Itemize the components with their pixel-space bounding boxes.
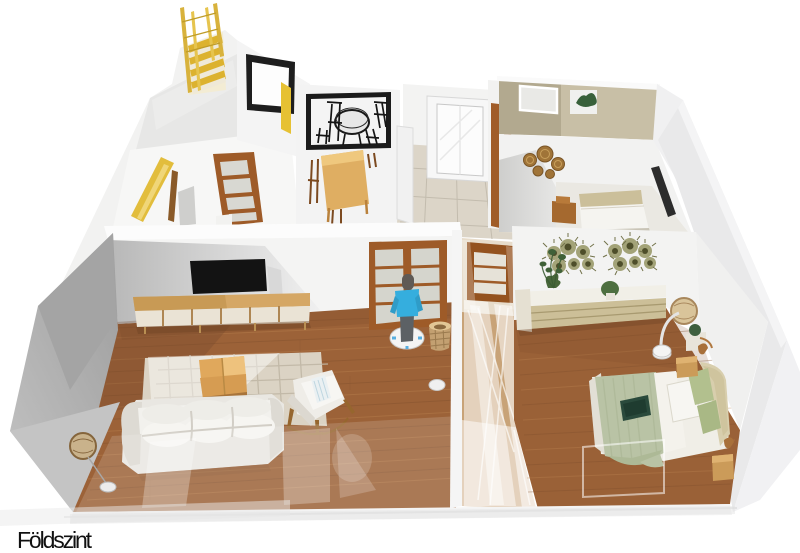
svg-text:Földszint: Földszint [17, 527, 93, 553]
